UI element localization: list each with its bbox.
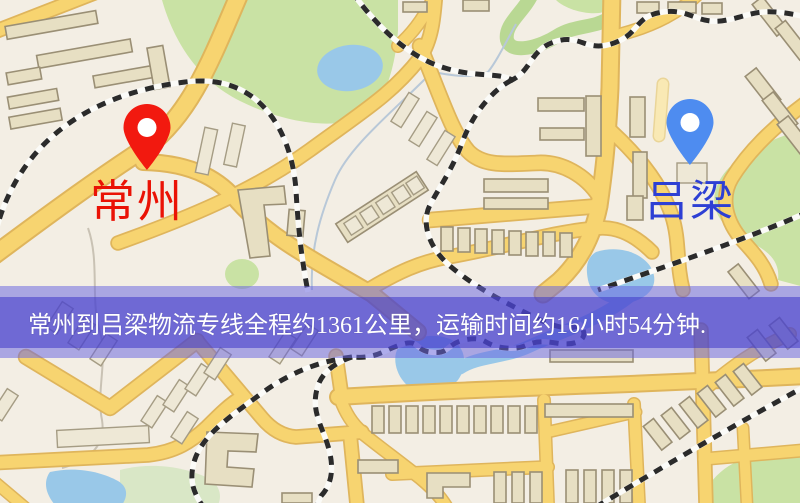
map-canvas[interactable]: 常州 吕梁 [0, 0, 800, 503]
route-info-text: 常州到吕梁物流专线全程约1361公里，运输时间约16小时54分钟. [0, 305, 706, 340]
destination-city-label: 吕梁 [645, 179, 735, 226]
origin-city-label: 常州 [90, 177, 184, 227]
route-info-banner-core: 常州到吕梁物流专线全程约1361公里，运输时间约16小时54分钟. [0, 297, 800, 348]
route-info-banner: 常州到吕梁物流专线全程约1361公里，运输时间约16小时54分钟. [0, 286, 800, 358]
map-screenshot: 常州 吕梁 常州到吕梁物流专线全程约1361公里，运输时间约16小时54分钟. [0, 0, 800, 503]
